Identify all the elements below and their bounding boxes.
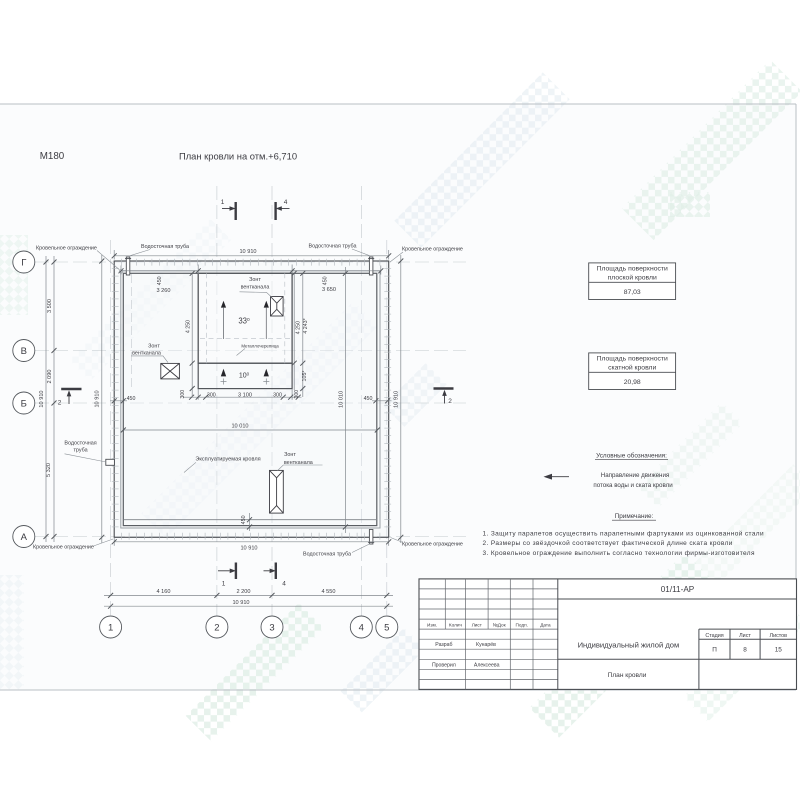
svg-text:План кровли: План кровли (608, 672, 647, 679)
svg-text:4 550: 4 550 (322, 589, 336, 595)
svg-text:5 320: 5 320 (46, 463, 52, 477)
svg-text:15: 15 (775, 647, 783, 654)
svg-text:3 650: 3 650 (322, 287, 336, 293)
svg-text:Алексеева: Алексеева (474, 662, 500, 668)
svg-text:10 910: 10 910 (393, 391, 399, 408)
svg-text:2. Размеры со звёздочкой соотв: 2. Размеры со звёздочкой соответствует ф… (483, 539, 733, 547)
svg-text:4: 4 (359, 623, 364, 634)
svg-text:труба: труба (73, 448, 87, 454)
svg-text:Кровельное ограждение: Кровельное ограждение (36, 246, 97, 252)
svg-text:Б: Б (21, 399, 27, 410)
svg-text:300: 300 (294, 390, 300, 399)
svg-text:1: 1 (221, 199, 225, 206)
svg-text:Кровельное ограждение: Кровельное ограждение (33, 545, 94, 551)
svg-text:П: П (712, 647, 717, 654)
svg-text:Металлочерепица: Металлочерепица (241, 343, 279, 348)
svg-text:450: 450 (364, 396, 373, 402)
svg-text:3 260: 3 260 (157, 288, 171, 294)
svg-text:№Док: №Док (493, 623, 507, 628)
svg-text:8: 8 (743, 647, 747, 654)
svg-text:Водосточная труба: Водосточная труба (309, 244, 357, 250)
svg-text:План кровли на отм.+6,710: План кровли на отм.+6,710 (179, 151, 297, 162)
svg-text:Кровельное ограждение: Кровельное ограждение (402, 542, 463, 548)
svg-text:4 160: 4 160 (157, 589, 171, 595)
svg-text:87,03: 87,03 (624, 289, 641, 296)
svg-text:Кунарёв: Кунарёв (476, 642, 496, 648)
svg-text:4: 4 (282, 581, 286, 588)
svg-text:Лист: Лист (472, 623, 483, 628)
svg-text:3. Кровельное ограждение выпол: 3. Кровельное ограждение выполнить согла… (483, 550, 755, 557)
svg-text:10 910: 10 910 (232, 600, 249, 606)
svg-text:Изм.: Изм. (427, 623, 437, 628)
svg-text:А: А (21, 532, 28, 543)
svg-text:3: 3 (269, 623, 274, 634)
svg-text:Примечание:: Примечание: (615, 513, 654, 520)
svg-text:2: 2 (58, 400, 62, 407)
svg-text:450: 450 (323, 276, 329, 285)
svg-text:Водосточная: Водосточная (64, 441, 96, 447)
svg-text:В: В (21, 346, 27, 357)
svg-text:Водосточная труба: Водосточная труба (303, 552, 351, 558)
svg-text:4 250: 4 250 (295, 321, 301, 334)
svg-text:300: 300 (180, 390, 186, 399)
svg-text:Площадь поверхности: Площадь поверхности (597, 265, 668, 272)
svg-text:450: 450 (127, 396, 136, 402)
svg-text:450: 450 (241, 515, 247, 524)
svg-text:10 010: 10 010 (339, 391, 345, 408)
svg-text:Условные обозначения:: Условные обозначения: (596, 452, 667, 460)
svg-text:01/11-АР: 01/11-АР (661, 585, 695, 594)
svg-text:450: 450 (157, 276, 163, 285)
svg-text:Дата: Дата (540, 623, 551, 628)
svg-text:2 200: 2 200 (237, 589, 251, 595)
svg-text:Зонт: Зонт (284, 452, 296, 458)
svg-text:Стадия: Стадия (705, 633, 723, 639)
svg-text:10 910: 10 910 (239, 249, 256, 255)
svg-text:Листов: Листов (770, 633, 788, 639)
svg-text:Эксплуатируемая кровля: Эксплуатируемая кровля (195, 457, 260, 463)
svg-text:Разраб: Разраб (435, 642, 452, 648)
svg-text:Индивидуальный жилой дом: Индивидуальный жилой дом (578, 641, 680, 650)
svg-text:Площадь поверхности: Площадь поверхности (597, 355, 668, 362)
svg-text:Проверил: Проверил (432, 662, 456, 668)
svg-text:3 500: 3 500 (47, 299, 53, 313)
svg-text:Зонт: Зонт (249, 277, 261, 283)
svg-text:Колич: Колич (449, 623, 463, 628)
svg-text:Лист: Лист (739, 633, 751, 639)
svg-text:10 010: 10 010 (231, 424, 248, 430)
svg-text:Кровельное ограждение: Кровельное ограждение (402, 247, 463, 253)
svg-text:Зонт: Зонт (148, 343, 160, 349)
svg-text:скатной кровли: скатной кровли (608, 363, 656, 371)
svg-text:10 910: 10 910 (94, 390, 100, 407)
svg-text:4 243*: 4 243* (303, 318, 309, 333)
svg-text:1: 1 (222, 581, 226, 588)
svg-text:Г: Г (21, 258, 26, 269)
svg-text:105*: 105* (302, 371, 308, 382)
svg-text:10 910: 10 910 (39, 390, 45, 407)
svg-text:4 250: 4 250 (185, 320, 191, 333)
svg-text:4: 4 (284, 199, 288, 206)
svg-text:1. Защиту парапетов осуществит: 1. Защиту парапетов осуществить парапетн… (483, 529, 765, 537)
svg-text:потока воды и ската кровли: потока воды и ската кровли (593, 482, 673, 489)
svg-text:Направление движения: Направление движения (601, 472, 670, 479)
svg-text:Водосточная труба: Водосточная труба (141, 244, 189, 250)
svg-text:20,98: 20,98 (624, 379, 641, 386)
svg-text:10 910: 10 910 (240, 546, 257, 552)
svg-text:5: 5 (384, 623, 389, 634)
svg-text:300: 300 (273, 392, 282, 398)
svg-text:300: 300 (207, 392, 216, 398)
svg-text:М180: М180 (40, 151, 65, 162)
svg-text:2: 2 (214, 623, 219, 634)
svg-text:1: 1 (108, 623, 113, 634)
svg-text:Подп.: Подп. (515, 623, 527, 628)
svg-text:вентканала: вентканала (241, 285, 270, 291)
svg-text:2 090: 2 090 (47, 370, 53, 384)
svg-text:2: 2 (448, 398, 452, 405)
svg-text:3 100: 3 100 (238, 392, 252, 398)
svg-text:плоской кровли: плоской кровли (608, 273, 657, 281)
